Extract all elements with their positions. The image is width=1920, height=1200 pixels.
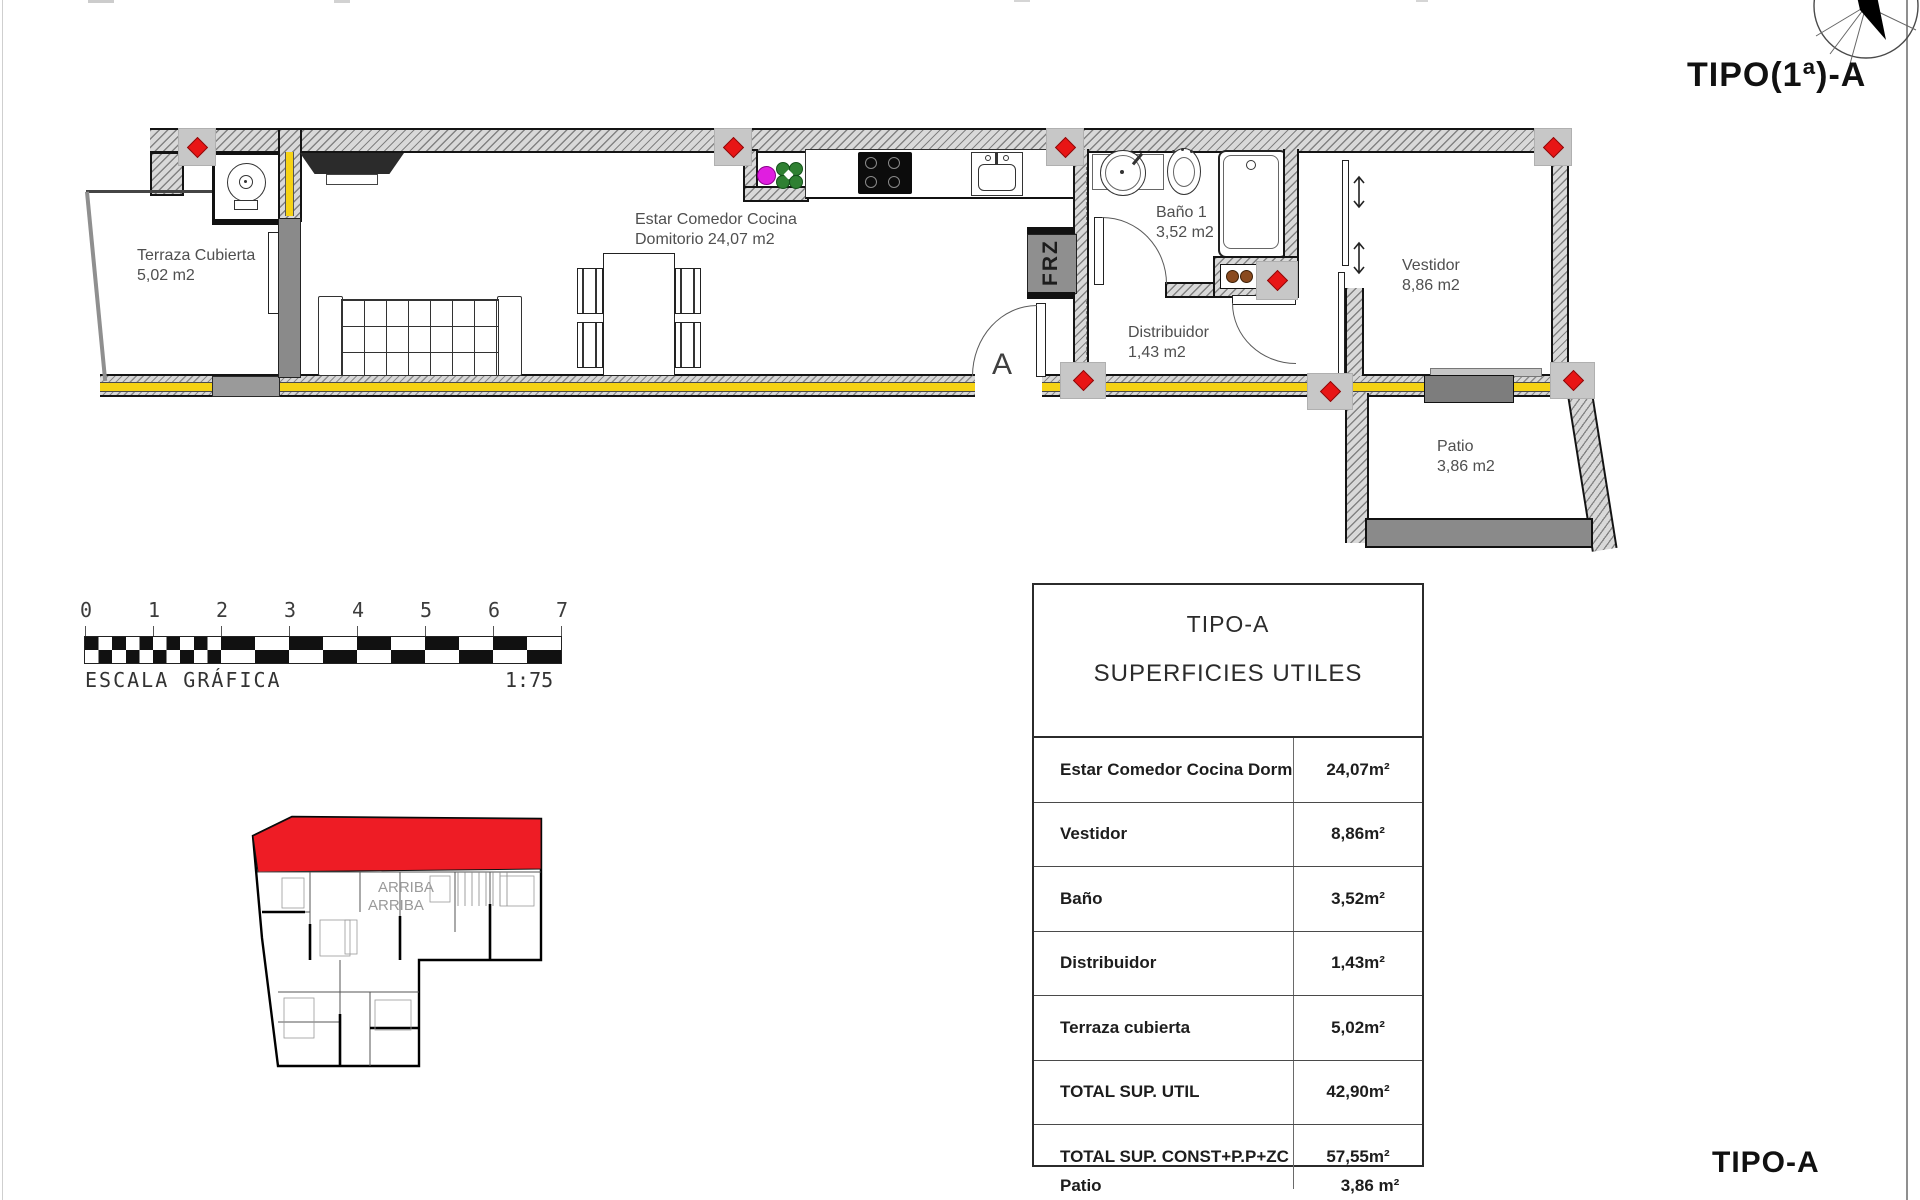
row-label: Baño bbox=[1034, 867, 1293, 931]
scale-tick-label: 2 bbox=[216, 598, 228, 622]
sofa-body bbox=[341, 299, 499, 376]
table-row: TOTAL SUP. UTIL 42,90m² bbox=[1034, 1061, 1422, 1126]
sink-basin bbox=[978, 164, 1016, 191]
scale-caption: ESCALA GRÁFICA bbox=[85, 668, 282, 692]
room-label-estar: Estar Comedor Cocina Domitorio 24,07 m2 bbox=[635, 210, 797, 250]
room-area: 3,52 m2 bbox=[1156, 224, 1214, 241]
toilet-dot bbox=[1190, 150, 1193, 153]
tv-unit-icon bbox=[300, 153, 404, 174]
chair-icon bbox=[675, 268, 701, 314]
room-name: Distribuidor bbox=[1128, 324, 1209, 341]
jar-icon bbox=[1226, 270, 1239, 283]
sofa-armrest bbox=[318, 296, 343, 376]
row-value: 3,52m² bbox=[1293, 867, 1422, 931]
table-row: Baño 3,52m² bbox=[1034, 867, 1422, 932]
scale-tick bbox=[357, 626, 358, 637]
sheet-type-title: TIPO-A bbox=[1712, 1146, 1820, 1180]
surfaces-table-header: TIPO-A SUPERFICIES UTILES bbox=[1034, 611, 1422, 738]
row-label: Vestidor bbox=[1034, 803, 1293, 867]
table-row: Estar Comedor Cocina Dorm 24,07m² bbox=[1034, 738, 1422, 803]
room-name: Terraza Cubierta bbox=[137, 247, 255, 264]
freezer-band bbox=[1027, 292, 1075, 299]
wall-bottom-living bbox=[278, 374, 975, 397]
freezer-label: FRZ bbox=[1027, 234, 1075, 292]
jar-icon bbox=[1240, 270, 1253, 283]
plan-sheet: { "titles": { "plan_type_top": "TIPO(1ª)… bbox=[0, 0, 1920, 1200]
scale-tick bbox=[153, 626, 154, 637]
room-name: Baño 1 bbox=[1156, 204, 1207, 221]
scale-tick-label: 6 bbox=[488, 598, 500, 622]
room-area: 5,02 m2 bbox=[137, 267, 195, 284]
section-marker-a: A bbox=[992, 348, 1012, 382]
surfaces-table: TIPO-A SUPERFICIES UTILES Estar Comedor … bbox=[1032, 583, 1424, 1167]
double-arrow-icon bbox=[1352, 240, 1366, 276]
row-value: 5,02m² bbox=[1293, 996, 1422, 1060]
wardrobe-sliding-track bbox=[1338, 272, 1345, 374]
toilet-bowl bbox=[1173, 157, 1195, 187]
wall-bath-bottom bbox=[1165, 282, 1219, 298]
wall-vestidor-right bbox=[1551, 149, 1569, 376]
scale-tick bbox=[221, 626, 222, 637]
wardrobe-sliding-track bbox=[1342, 160, 1349, 266]
room-name: Estar Comedor Cocina bbox=[635, 211, 797, 228]
sink-tap bbox=[985, 155, 991, 161]
insulation-strip bbox=[278, 382, 975, 392]
row-value: 8,86m² bbox=[1293, 803, 1422, 867]
double-arrow-icon bbox=[1352, 174, 1366, 210]
key-plan-label: ARRIBA bbox=[368, 897, 424, 914]
scale-tick-label: 0 bbox=[80, 598, 92, 622]
wall-bath-right bbox=[1283, 149, 1299, 256]
scale-ratio: 1:75 bbox=[505, 668, 553, 692]
washing-machine-base bbox=[234, 200, 258, 210]
sink-tap bbox=[1003, 155, 1009, 161]
scale-bar-cells bbox=[85, 637, 221, 650]
terraza-sliding-panel bbox=[278, 218, 301, 378]
row-value: 1,43m² bbox=[1293, 932, 1422, 996]
key-plan-highlight bbox=[253, 817, 541, 872]
bathtub-drain bbox=[1246, 160, 1256, 170]
table-extra-row-label: Patio bbox=[1060, 1176, 1102, 1196]
patio-floor bbox=[1365, 518, 1593, 548]
room-area: 1,43 m2 bbox=[1128, 344, 1186, 361]
scale-bar-cells bbox=[221, 637, 561, 650]
entrance-door-leaf bbox=[1036, 303, 1046, 377]
terraza-threshold bbox=[212, 376, 280, 397]
room-label-distribuidor: Distribuidor 1,43 m2 bbox=[1128, 323, 1209, 363]
room-area: Domitorio 24,07 m2 bbox=[635, 231, 775, 248]
burner bbox=[865, 176, 877, 188]
row-value: 24,07m² bbox=[1293, 738, 1422, 802]
scale-bar bbox=[85, 637, 561, 663]
scale-tick bbox=[425, 626, 426, 637]
room-area: 8,86 m2 bbox=[1402, 277, 1460, 294]
terraza-parapet-top bbox=[86, 190, 214, 193]
row-value: 42,90m² bbox=[1293, 1061, 1422, 1125]
scale-tick bbox=[561, 626, 562, 637]
basin-drain bbox=[1120, 170, 1124, 174]
scale-tick bbox=[493, 626, 494, 637]
insulation-vertical bbox=[285, 152, 294, 216]
chair-icon bbox=[675, 322, 701, 368]
sofa-armrest bbox=[497, 296, 522, 376]
plan-type-title: TIPO(1ª)-A bbox=[1687, 56, 1866, 95]
scale-tick bbox=[85, 626, 86, 637]
scale-tick-label: 4 bbox=[352, 598, 364, 622]
toilet-dot bbox=[1181, 148, 1184, 151]
scale-tick-label: 7 bbox=[556, 598, 568, 622]
wall-dist-vestidor bbox=[1345, 288, 1364, 376]
table-subtitle: SUPERFICIES UTILES bbox=[1034, 660, 1422, 688]
scale-bar-cells bbox=[221, 650, 561, 663]
sink-faucet bbox=[995, 153, 998, 165]
vestidor-door-swing bbox=[1232, 303, 1296, 364]
burner bbox=[888, 157, 900, 169]
graphic-scale: 0 1 2 3 4 5 6 7 ESCALA GRÁFICA 1:75 bbox=[0, 590, 800, 710]
patio-window bbox=[1424, 375, 1514, 403]
table-extra-row-value: 3,86 m² bbox=[1320, 1176, 1420, 1196]
room-label-vestidor: Vestidor 8,86 m2 bbox=[1402, 256, 1460, 296]
room-name: Vestidor bbox=[1402, 257, 1460, 274]
sofa-icon bbox=[318, 296, 520, 374]
row-label: Terraza cubierta bbox=[1034, 996, 1293, 1060]
plant-icon bbox=[757, 166, 776, 185]
burner bbox=[888, 176, 900, 188]
tv-base bbox=[326, 174, 378, 185]
room-label-bano: Baño 1 3,52 m2 bbox=[1156, 203, 1214, 243]
key-plan: ARRIBA ARRIBA bbox=[250, 812, 545, 1070]
niche-wall bbox=[743, 186, 809, 202]
row-label: TOTAL SUP. UTIL bbox=[1034, 1061, 1293, 1125]
floor-plan: Terraza Cubierta 5,02 m2 Estar Comedor C… bbox=[0, 0, 1920, 580]
room-label-terraza: Terraza Cubierta 5,02 m2 bbox=[137, 246, 255, 286]
scale-tick-label: 3 bbox=[284, 598, 296, 622]
scale-bar-cells bbox=[85, 650, 221, 663]
table-row: Distribuidor 1,43m² bbox=[1034, 932, 1422, 997]
scale-tick bbox=[289, 626, 290, 637]
washing-machine-dot bbox=[244, 180, 247, 183]
freezer-band bbox=[1027, 227, 1075, 234]
axis-dashed-line bbox=[1086, 167, 1087, 225]
toilet-dot bbox=[1172, 150, 1175, 153]
scale-tick-label: 1 bbox=[148, 598, 160, 622]
row-label: Distribuidor bbox=[1034, 932, 1293, 996]
terraza-parapet-left bbox=[85, 192, 107, 382]
room-area: 3,86 m2 bbox=[1437, 458, 1495, 475]
axis-dashed-line bbox=[1086, 301, 1087, 365]
plant-leaf bbox=[789, 175, 803, 189]
chair-icon bbox=[577, 322, 603, 368]
room-name: Patio bbox=[1437, 438, 1473, 455]
burner bbox=[865, 157, 877, 169]
table-row: Terraza cubierta 5,02m² bbox=[1034, 996, 1422, 1061]
sliding-door-leaf bbox=[268, 232, 279, 314]
table-title: TIPO-A bbox=[1034, 611, 1422, 638]
scale-tick-label: 5 bbox=[420, 598, 432, 622]
room-label-patio: Patio 3,86 m2 bbox=[1437, 437, 1495, 477]
dining-table-icon bbox=[603, 253, 675, 376]
row-label: Estar Comedor Cocina Dorm bbox=[1034, 738, 1293, 802]
key-plan-label: ARRIBA bbox=[378, 879, 434, 896]
kitchen-counter bbox=[805, 149, 1075, 199]
table-row: Vestidor 8,86m² bbox=[1034, 803, 1422, 868]
chair-icon bbox=[577, 268, 603, 314]
